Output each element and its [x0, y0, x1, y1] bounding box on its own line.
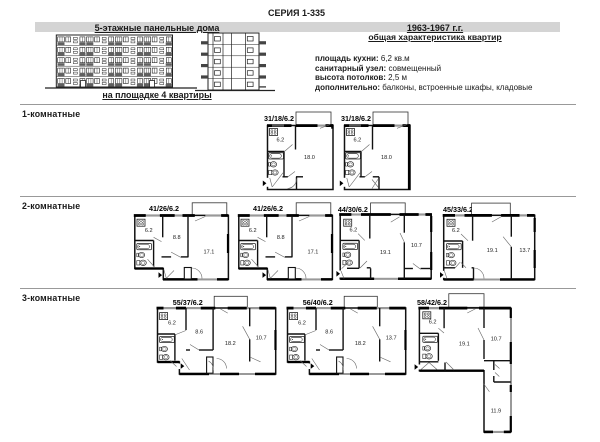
svg-text:6.2: 6.2 [452, 228, 460, 234]
svg-text:6.2: 6.2 [249, 228, 257, 234]
svg-text:10.7: 10.7 [256, 335, 267, 341]
svg-text:31/18/6.2: 31/18/6.2 [341, 114, 371, 123]
svg-text:45/33/6.2: 45/33/6.2 [443, 205, 473, 214]
svg-text:18.2: 18.2 [225, 341, 236, 347]
svg-text:55/37/6.2: 55/37/6.2 [173, 298, 203, 307]
svg-text:17.1: 17.1 [308, 250, 319, 256]
svg-text:31/18/6.2: 31/18/6.2 [264, 114, 294, 123]
svg-text:6.2: 6.2 [277, 138, 285, 144]
svg-text:41/26/6.2: 41/26/6.2 [253, 204, 283, 213]
svg-text:41/26/6.2: 41/26/6.2 [149, 204, 179, 213]
svg-text:8.8: 8.8 [277, 235, 285, 241]
svg-text:6.2: 6.2 [298, 321, 306, 327]
svg-text:19.1: 19.1 [380, 250, 391, 256]
svg-text:6.2: 6.2 [353, 138, 361, 144]
svg-text:13.7: 13.7 [519, 248, 530, 254]
svg-text:13.7: 13.7 [386, 335, 397, 341]
svg-text:18.0: 18.0 [381, 155, 392, 161]
svg-text:6.2: 6.2 [145, 228, 153, 234]
svg-text:19.1: 19.1 [459, 342, 470, 348]
svg-text:8.6: 8.6 [195, 329, 203, 335]
svg-text:10.7: 10.7 [411, 243, 422, 249]
svg-text:10.7: 10.7 [491, 337, 502, 343]
svg-text:18.2: 18.2 [355, 341, 366, 347]
svg-text:18.0: 18.0 [304, 155, 315, 161]
svg-text:11.9: 11.9 [491, 409, 501, 415]
svg-text:8.6: 8.6 [325, 329, 333, 335]
svg-text:6.2: 6.2 [350, 228, 358, 234]
svg-text:58/42/6.2: 58/42/6.2 [417, 298, 447, 307]
svg-text:17.1: 17.1 [204, 250, 215, 256]
svg-text:6.2: 6.2 [429, 319, 437, 325]
svg-text:56/40/6.2: 56/40/6.2 [303, 298, 333, 307]
svg-text:6.2: 6.2 [168, 321, 176, 327]
svg-text:8.8: 8.8 [173, 235, 181, 241]
svg-text:19.1: 19.1 [487, 248, 498, 254]
svg-text:44/30/6.2: 44/30/6.2 [338, 205, 368, 214]
